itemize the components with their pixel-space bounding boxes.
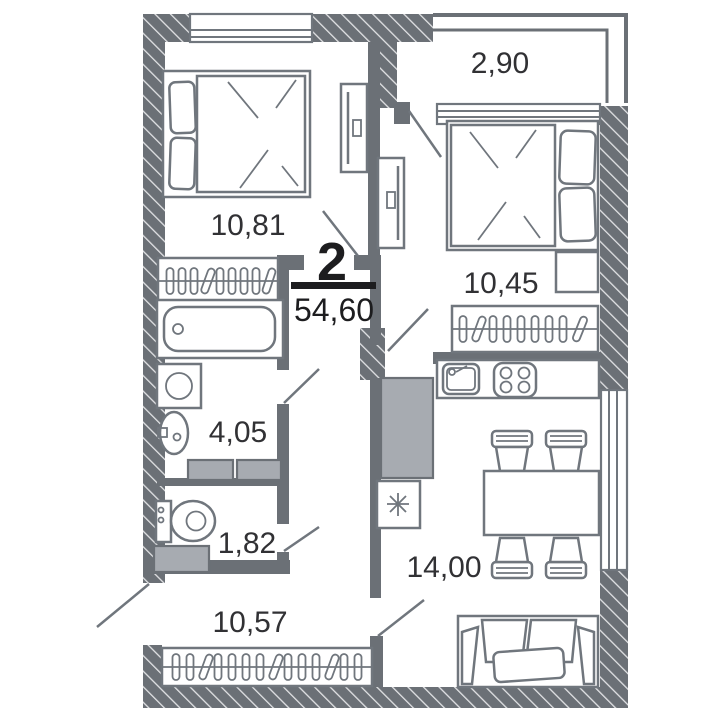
bathroom-door-swing [284,369,319,403]
floor-plan-drawing: 10,81 2,90 [0,0,720,720]
floor-plan: 10,81 2,90 [0,0,720,720]
bedroom2-door-swing [388,309,428,351]
wall-bottom [143,687,628,708]
bedroom2-area-label: 10,45 [463,267,538,300]
wall-left-bottom-pier [143,645,162,687]
wardrobe-icon [452,306,598,352]
bathtub-icon [157,300,283,358]
dining-table [484,471,599,535]
balcony-parapet [433,15,626,103]
wall-top-right [312,14,433,42]
sofa-icon [458,616,598,687]
total-area-label: 54,60 [294,292,374,328]
toilet-area-label: 1,82 [218,527,276,560]
plan-summary: 2 54,60 [291,232,376,328]
entrance-door-swing [97,584,149,627]
room-balcony: 2,90 [471,47,529,80]
wall-right-upper [600,106,628,390]
nightstand [556,252,598,292]
double-bed-icon [447,121,598,250]
chair-icon [492,538,532,578]
room-kitchen-living: 14,00 [377,360,599,687]
kitchen-counter [437,360,599,398]
wc-door-swing [284,527,319,551]
tall-cabinet [381,378,433,478]
toilet-icon [156,501,215,542]
bedroom1-wall-nib [277,255,304,270]
tv-icon [341,84,367,172]
dining-set [484,431,599,578]
room-hallway: 10,57 [162,606,372,686]
balcony-area-label: 2,90 [471,47,529,80]
bathroom-cabinet [188,460,233,480]
summary-divider [291,282,376,289]
window-bedroom1 [190,14,312,42]
double-bed-icon [163,71,310,197]
balcony-door-post [394,102,410,124]
wall-right-lower [600,570,628,693]
chair-icon [546,538,586,578]
kitchen-door-swing [378,600,424,636]
washing-machine-icon [157,364,201,408]
bedroom1-area-label: 10,81 [210,209,285,242]
window-kitchen [601,390,627,570]
tv-icon [378,158,404,248]
toilet-cabinet [154,546,209,572]
bathroom-door-post [277,404,289,420]
room-bathroom: 4,05 [157,300,283,480]
hallway-area-label: 10,57 [212,606,287,639]
chair-icon [546,431,586,471]
wardrobe-icon [158,258,278,303]
kitchen-area-label: 14,00 [406,551,481,584]
fridge-icon [377,481,420,528]
room-bedroom-2: 10,45 [378,121,598,352]
bathroom-cabinet [237,460,281,480]
wardrobe-icon [162,648,372,686]
chair-icon [492,431,532,471]
bathroom-area-label: 4,05 [209,416,267,449]
